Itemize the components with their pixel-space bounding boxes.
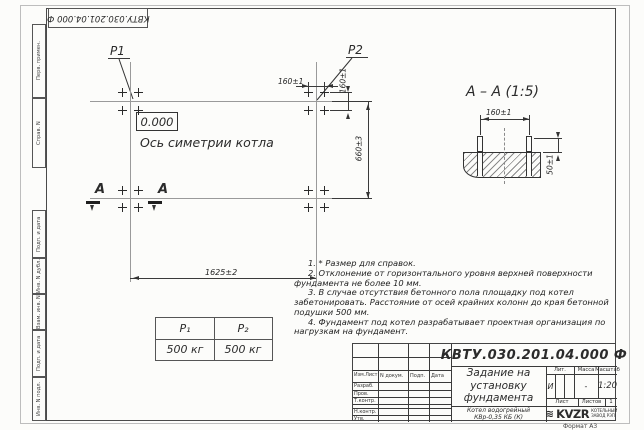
anchor-bolt-marker [304, 203, 313, 212]
tb-lit-value: И [546, 374, 555, 398]
tb-sheet-header: Лист [546, 398, 578, 406]
kvzr-logo-text: KVZR [556, 407, 589, 421]
anchor-bolt-marker [304, 186, 313, 195]
p2-leader-shelf [346, 57, 368, 58]
format-note: Формат А3 [563, 423, 597, 430]
axis-line-bottom [90, 198, 350, 199]
tb-lit-header: Лит. [546, 366, 574, 374]
axis-line-right [316, 62, 317, 282]
anchor-bolt-marker [320, 186, 329, 195]
title-block: Изм.Лист N докум. Подп. Дата Разраб. Про… [352, 343, 616, 421]
stamp-sprav-n: Справ. N [32, 98, 46, 168]
dim-line-rows [368, 101, 369, 198]
section-cut-stroke [86, 201, 100, 204]
elevation-mark-box: 0.000 [136, 112, 178, 131]
tb-product-line1: Котел водогрейный [467, 407, 530, 415]
anchor-bolt-marker [134, 186, 143, 195]
top-designation-text: КВТУ.030.201.04.000 Ф [47, 13, 150, 23]
dim-line-groups [130, 278, 316, 279]
dim-arrow [523, 117, 532, 121]
tb-grid [429, 344, 430, 422]
tb-col-podp: Подп. [410, 373, 425, 379]
load-table: P₁ P₂ 500 кг 500 кг [155, 317, 273, 361]
note-2: 2. Отклонение от горизонтального уровня … [294, 269, 620, 289]
anchor-bolt-marker [118, 186, 127, 195]
dim-arrow [130, 276, 139, 280]
tb-col-ndoc: N докум. [380, 373, 403, 379]
anchor-bolt-marker [118, 88, 127, 97]
tb-doc-number: КВТУ.030.201.04.000 Ф [451, 344, 617, 366]
tb-sheets-value: 1 [605, 398, 617, 406]
load-point-p1-label: P1 [110, 44, 125, 58]
tb-grid [353, 370, 451, 371]
section-letter-1: А [95, 182, 105, 197]
company-name-line2: ЗАВОД РЭП [591, 414, 615, 419]
anchor-bolt-marker [320, 106, 329, 115]
embedded-bolt-shaft [526, 153, 532, 176]
dim-arrow [556, 152, 560, 161]
tb-row-tkontr: Т.контр. [354, 398, 376, 404]
embedded-bolt-shaft [477, 153, 483, 176]
dim-arrow [324, 84, 333, 88]
kvzr-logo-mark-icon: ≋ [546, 409, 554, 420]
p1-leader-shelf [108, 58, 130, 59]
anchor-bolt-marker [118, 106, 127, 115]
dim-arrow [366, 101, 370, 110]
tb-product-line2: КВр-0,35 КБ (К) [474, 414, 523, 422]
tb-col-data: Дата [431, 373, 444, 379]
load-table-header-p1: P₁ [156, 318, 214, 339]
dim-arrow [480, 117, 489, 121]
section-cut-stroke [148, 201, 162, 204]
stamp-inv-dubl: Инв. N дубл. [32, 258, 46, 294]
section-dim-bolts-text: 160±1 [486, 108, 511, 117]
anchor-bolt-marker [118, 203, 127, 212]
stamp-podp-data-2: Подп. и дата [32, 330, 46, 377]
tb-product: Котел водогрейный КВр-0,35 КБ (К) [451, 406, 546, 422]
tb-grid [353, 357, 451, 358]
tb-sheets-header: Листов [578, 398, 605, 406]
tb-company-cell: ≋ KVZR КОТЕЛЬНЫЙ ЗАВОД РЭП [546, 406, 617, 422]
tb-grid [378, 344, 379, 422]
tb-grid [353, 404, 451, 405]
stamp-podp-data-1: Подп. и дата [32, 210, 46, 258]
anchor-bolt-marker [320, 203, 329, 212]
notes-block: 1. * Размер для справок. 2. Отклонение о… [294, 259, 620, 337]
tb-grid [555, 374, 556, 398]
load-table-header-p2: P₂ [214, 318, 272, 339]
elevation-mark-value: 0.000 [141, 115, 174, 129]
tb-row-utv: Утв. [354, 416, 365, 422]
stamp-inv-podl: Инв. N подл. [32, 377, 46, 421]
section-view-arrow [90, 205, 94, 214]
dim-arrow [556, 132, 560, 141]
section-view-arrow [152, 205, 156, 214]
section-bolt [526, 136, 532, 152]
section-bolt [477, 136, 483, 152]
load-point-p2-label: P2 [348, 43, 363, 57]
section-dim-height-text: 50±1 [546, 152, 555, 178]
anchor-bolt-marker [304, 106, 313, 115]
dim-arrow [346, 110, 350, 119]
boiler-axis-label: Ось симетрии котла [140, 135, 274, 150]
section-centerline [504, 128, 505, 184]
axis-line-top [90, 101, 350, 102]
tb-row-nkontr: Н.контр. [354, 409, 376, 415]
tb-mass-value: - [574, 374, 598, 398]
tb-grid [564, 374, 565, 398]
section-view-title: А – А (1:5) [466, 84, 539, 100]
section-letter-2: А [158, 182, 168, 197]
dim-rows-text: 660±3 [355, 130, 364, 168]
stamp-vzam-inv: Взам. инв. N [32, 294, 46, 330]
note-4: 4. Фундамент под котел разрабатывает про… [294, 318, 620, 338]
tb-col-izm: Изм.Лист [354, 373, 377, 378]
tb-grid [408, 344, 409, 422]
stamp-perv-primen: Перв. примен. [32, 24, 46, 98]
load-table-value-p1: 500 кг [156, 339, 214, 360]
load-table-value-p2: 500 кг [214, 339, 272, 360]
company-name: КОТЕЛЬНЫЙ ЗАВОД РЭП [591, 409, 617, 419]
tb-grid [353, 415, 451, 416]
tb-doc-title: Задание на установку фундамента [451, 366, 546, 406]
dim-groups-text: 1625±2 [205, 268, 237, 277]
tb-scale-header: Масштаб [598, 366, 617, 374]
top-designation-box: КВТУ.030.201.04.000 Ф [48, 8, 148, 28]
dim-arrow [366, 192, 370, 201]
tb-scale-value: 1:20 [598, 374, 617, 398]
axis-line-left [130, 62, 131, 282]
anchor-bolt-marker [134, 203, 143, 212]
tb-row-prov: Пров. [354, 391, 369, 397]
note-3: 3. В случае отсутствия бетонного пола пл… [294, 288, 620, 317]
drawing-sheet: Перв. примен. Справ. N Подп. и дата Инв.… [0, 0, 644, 430]
dim-bolt-h-text: 160±1 [278, 77, 303, 86]
tb-row-razrab: Разраб. [354, 383, 374, 389]
dim-bolt-v-text: 160±1 [339, 64, 348, 98]
anchor-bolt-marker [134, 88, 143, 97]
